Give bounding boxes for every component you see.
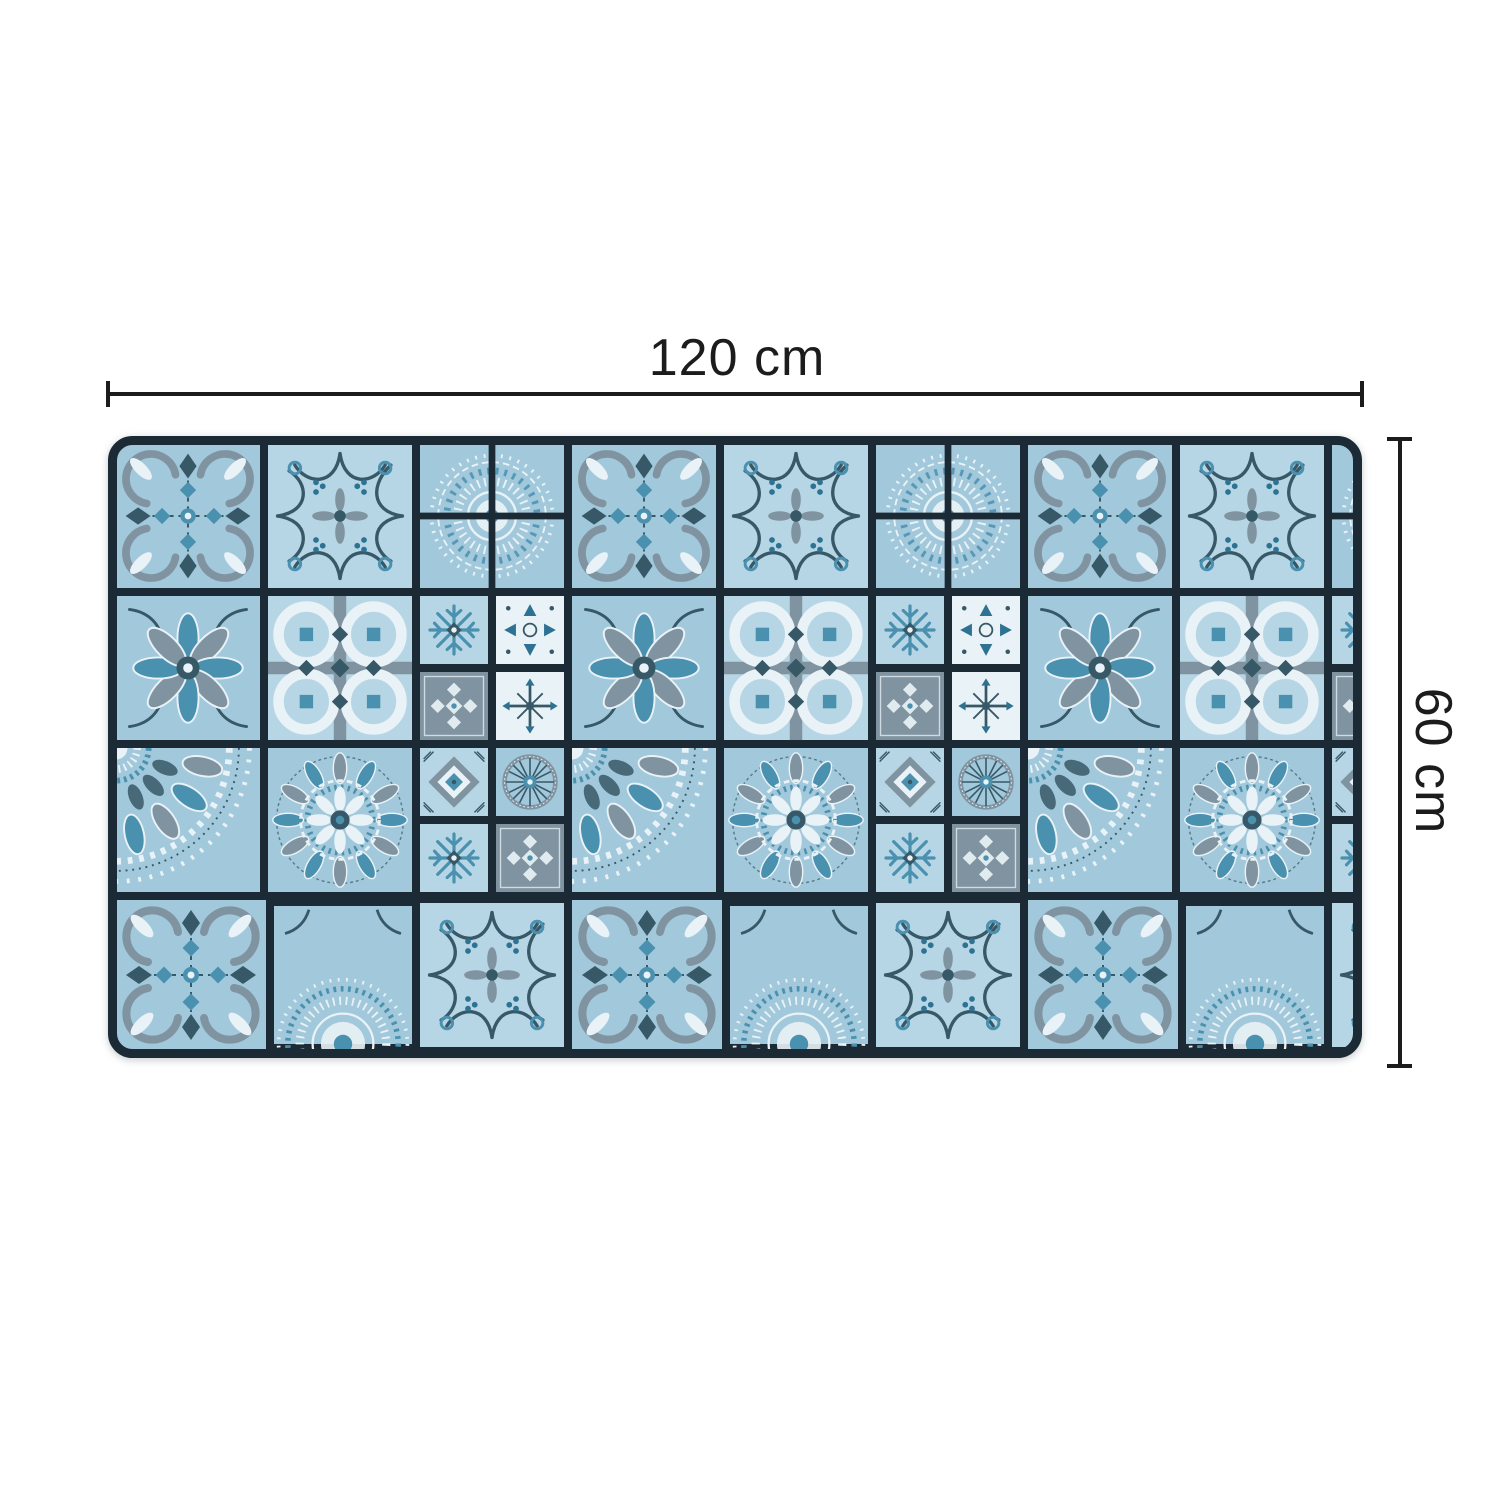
width-dimension-label: 120 cm	[487, 332, 987, 384]
width-line-right-tick	[1360, 381, 1364, 407]
product-dimension-diagram: 120 cm 60 cm	[0, 0, 1500, 1500]
mat-surface	[113, 441, 1358, 1054]
tile-mat-product-image	[108, 436, 1362, 1058]
height-dimension-line	[1398, 437, 1402, 1067]
azulejo-tile-pattern-graphic	[108, 436, 1362, 1058]
height-dimension-label: 60 cm	[1407, 611, 1459, 911]
height-line-bottom-tick	[1387, 1064, 1412, 1068]
height-line-top-tick	[1387, 437, 1412, 441]
width-line-left-tick	[106, 381, 110, 407]
width-dimension-line	[108, 392, 1362, 396]
